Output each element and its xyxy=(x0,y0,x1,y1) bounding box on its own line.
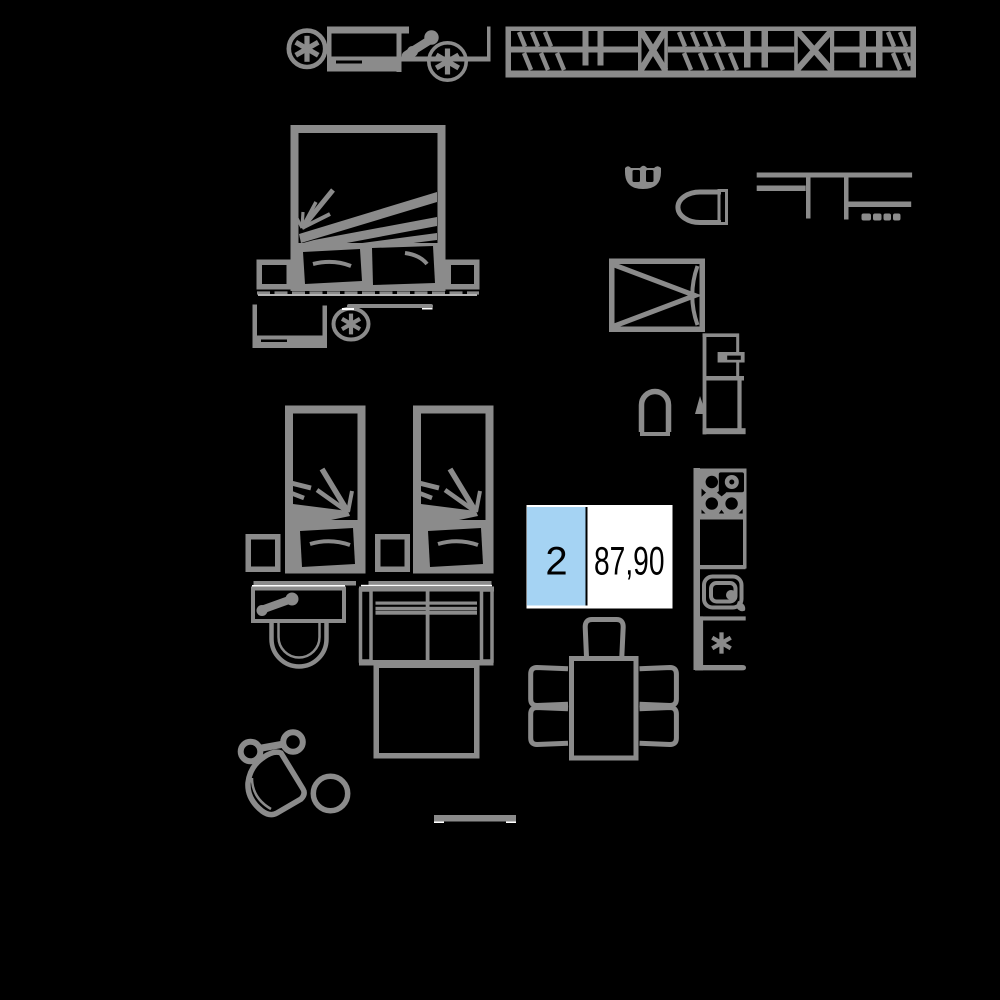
svg-text:87,90: 87,90 xyxy=(594,540,665,584)
svg-text:2: 2 xyxy=(545,540,567,584)
